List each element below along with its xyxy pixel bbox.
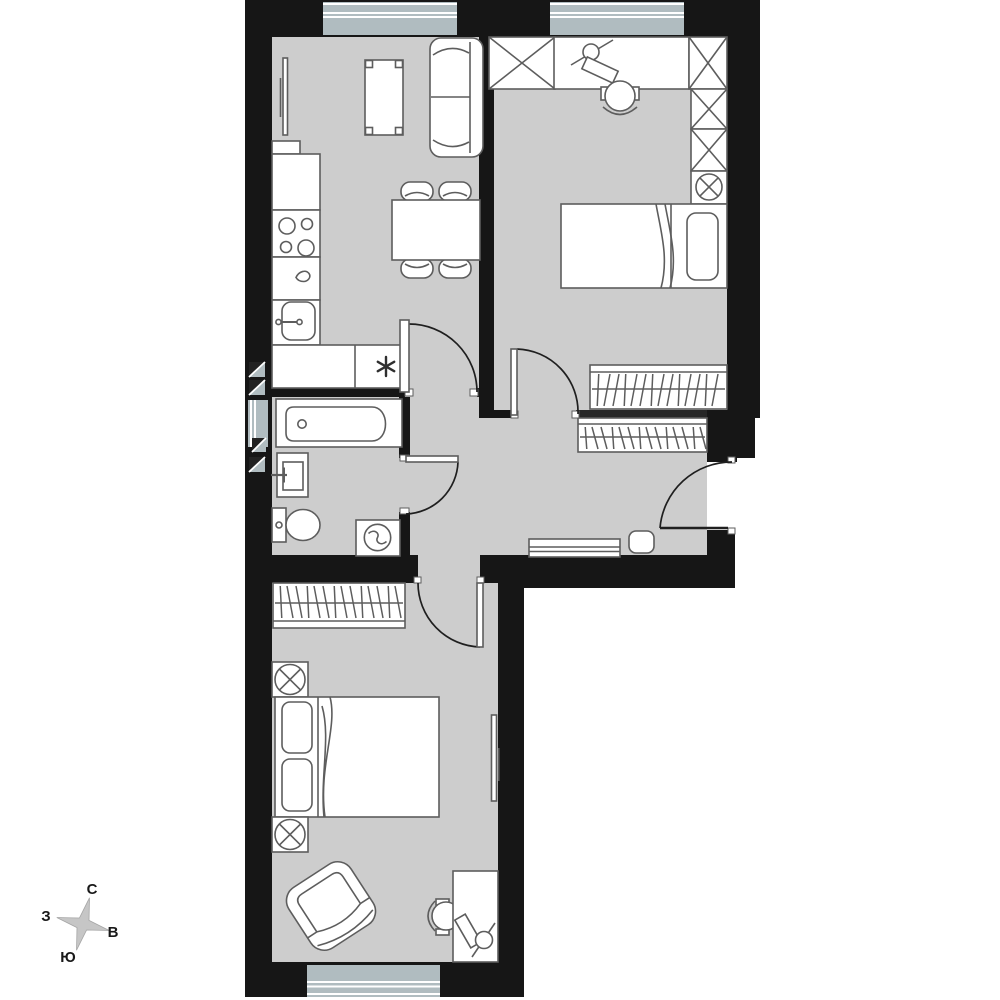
- window: [307, 965, 440, 997]
- washbasin-icon: [271, 453, 308, 497]
- wall-bedroom-door-stub: [482, 410, 515, 418]
- closet-icon: [489, 37, 555, 89]
- wall-band-bathroom-bottom: [245, 555, 418, 583]
- dining-chair-icon: [401, 259, 433, 278]
- wardrobe-icon: [273, 583, 405, 628]
- compass-west-label: З: [41, 908, 50, 925]
- vent-icon: [249, 457, 265, 472]
- wall-under-counter: [272, 388, 406, 397]
- closet-icon: [689, 37, 727, 89]
- dining-table-icon: [392, 200, 480, 260]
- nightstand-lamp-icon: [272, 817, 308, 852]
- opening-living-door: [405, 388, 477, 397]
- kitchen-cabinet-stub: [272, 141, 300, 154]
- counter-row: [272, 345, 408, 388]
- dining-chair-icon: [401, 182, 433, 201]
- drain-icon: [298, 420, 306, 428]
- compass-star-icon: [57, 898, 109, 950]
- sofa-icon: [430, 38, 483, 157]
- stove-icon: [272, 210, 320, 257]
- floor-plan-page: С З В Ю: [0, 0, 1000, 1000]
- compass-rose: С З В Ю: [41, 881, 118, 966]
- counter-segment: [272, 257, 320, 300]
- compass-south-label: Ю: [60, 949, 75, 966]
- shoe-cabinet-icon: [529, 539, 620, 557]
- dining-chair-icon: [439, 182, 471, 201]
- toilet-icon: [272, 508, 320, 542]
- pouf-icon: [629, 531, 654, 553]
- wall-left: [245, 0, 272, 997]
- washing-machine-icon: [356, 520, 400, 556]
- vent-icon: [252, 438, 266, 452]
- double-bed-icon: [275, 697, 439, 817]
- compass-east-label: В: [108, 924, 119, 941]
- pillow-icon: [687, 213, 718, 280]
- kitchen-sink-icon: [272, 300, 320, 345]
- wall-right-outer: [727, 0, 760, 418]
- vent-icon: [249, 362, 265, 377]
- dining-chair-icon: [439, 259, 471, 278]
- wardrobe-icon: [578, 418, 707, 452]
- window: [323, 2, 457, 35]
- opening-bedroom-top-door: [515, 410, 576, 418]
- bathtub-icon: [276, 399, 402, 447]
- wall-bedroom2-right: [498, 583, 524, 997]
- floor-plan-svg: С З В Ю: [0, 0, 1000, 1000]
- opening-bedroom-bottom-door: [418, 555, 480, 583]
- closet-icon: [691, 89, 727, 129]
- compass-north-label: С: [87, 881, 98, 898]
- nightstand-lamp-icon: [272, 662, 308, 697]
- coffee-table-icon: [365, 60, 403, 135]
- wall-under-wardrobe: [576, 410, 708, 418]
- pillow-icon: [282, 702, 312, 753]
- closet-icon: [691, 129, 727, 171]
- fridge-icon: [272, 154, 320, 210]
- opening-bathroom-door: [399, 458, 410, 512]
- wall-entry-upper: [707, 410, 737, 462]
- wall-band-hallway-bottom-2: [524, 555, 735, 588]
- pillow-icon: [282, 759, 312, 811]
- bed-icon: [561, 204, 727, 288]
- window: [550, 2, 684, 35]
- wardrobe-icon: [590, 365, 727, 409]
- vent-icon: [249, 380, 265, 395]
- nightstand-lamp-icon: [691, 171, 727, 204]
